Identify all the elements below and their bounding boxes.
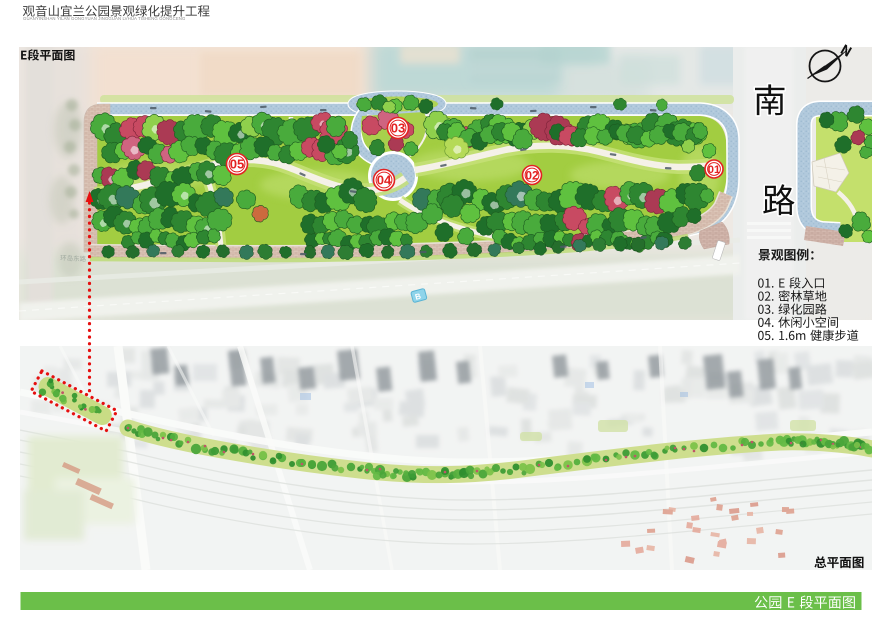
svg-text:04: 04 (377, 173, 392, 188)
svg-text:02: 02 (525, 168, 539, 182)
svg-text:GUANYINSHAN YILAN GONGYUAN JI: GUANYINSHAN YILAN GONGYUAN JINGGUAN LVHU… (23, 16, 186, 21)
svg-text:03: 03 (391, 121, 406, 136)
svg-text:01: 01 (708, 164, 720, 176)
svg-text:05: 05 (230, 157, 245, 172)
